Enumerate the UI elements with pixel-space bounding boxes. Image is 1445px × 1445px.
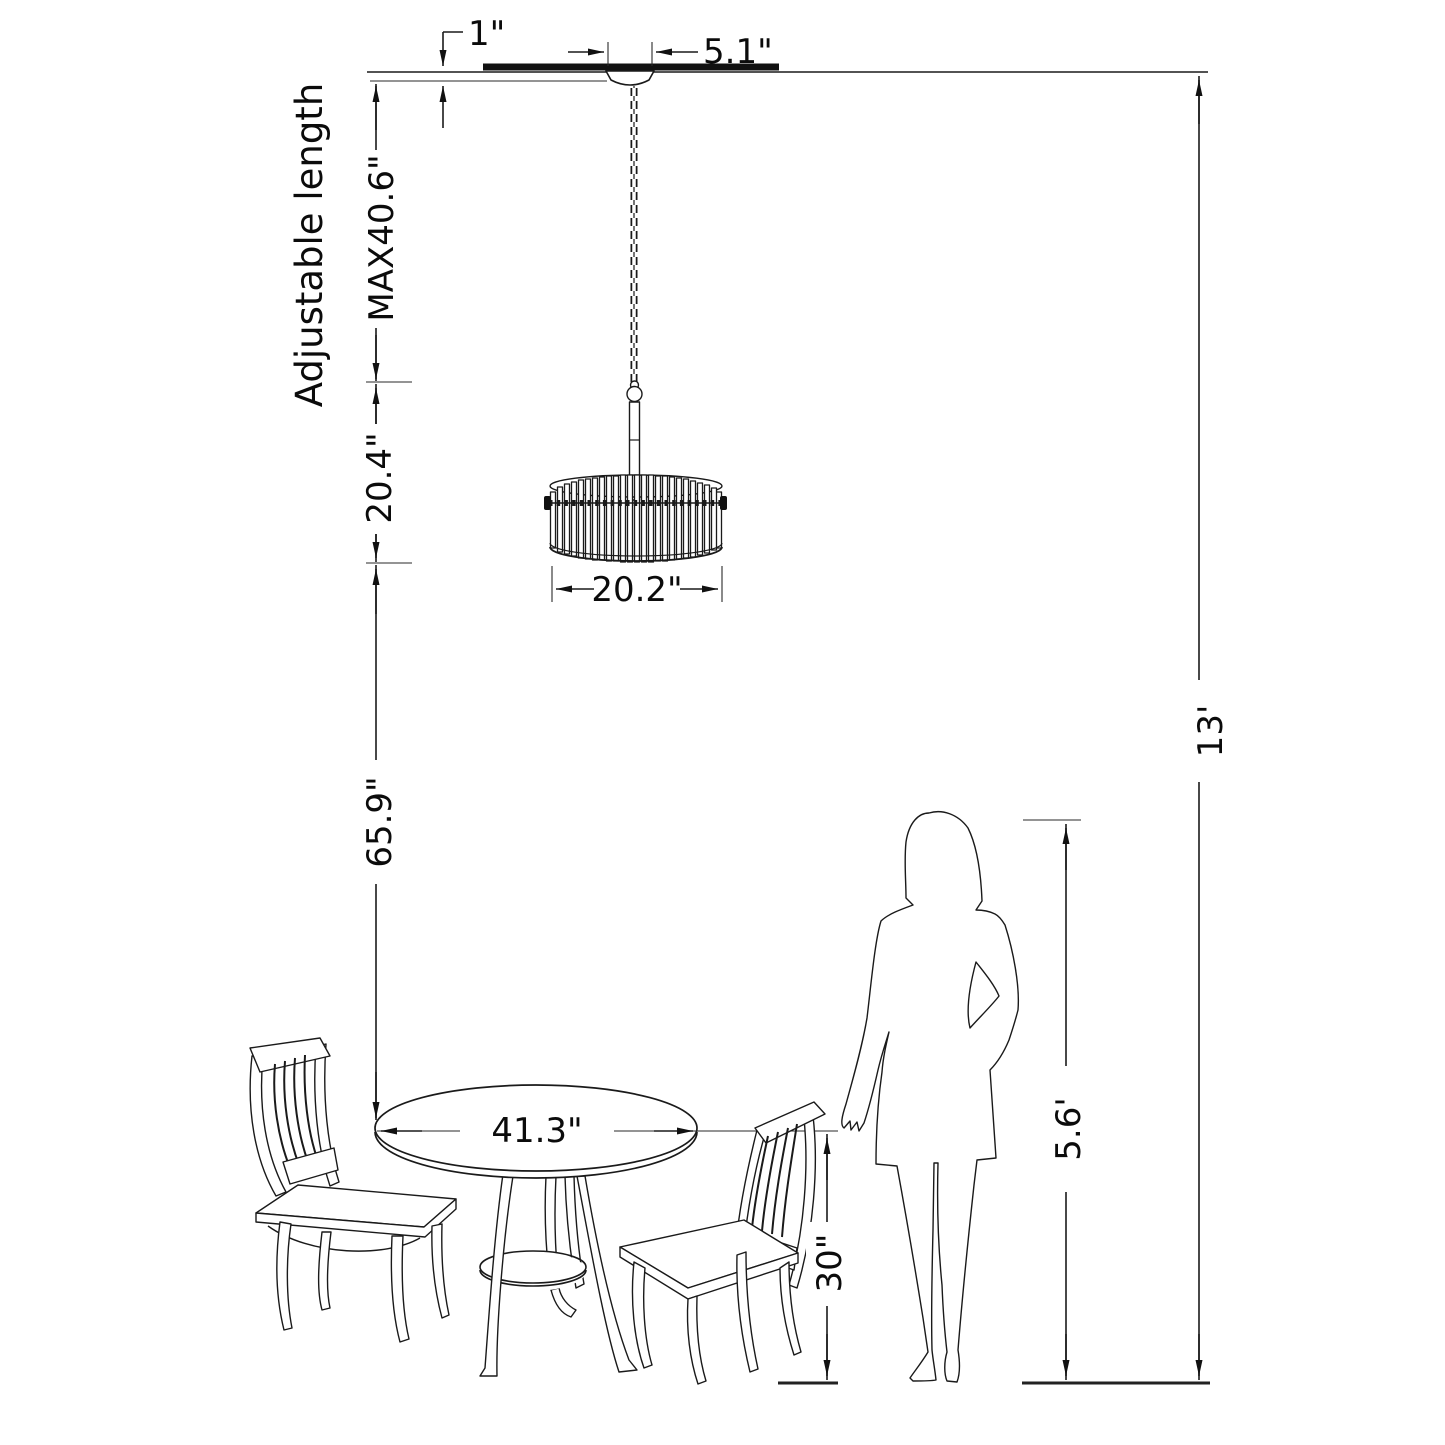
dim-ceiling-height: 13' [1186,76,1231,1380]
chair-left [250,1038,456,1342]
dim-shade-diameter: 20.2" [552,566,722,610]
shade-diameter-label: 20.2" [591,570,682,610]
shade-to-table-label: 65.9" [360,776,400,867]
person-height-label: 5.6' [1049,1097,1089,1160]
canopy-drop-label: 1" [468,14,505,54]
table-diameter-label: 41.3" [491,1111,582,1151]
chandelier-shade [544,475,727,562]
ceiling-height-label: 13' [1191,705,1231,758]
dimension-diagram: 1" 5.1" MAX40.6" Adjustable length 20.4"… [0,0,1445,1445]
table-height-label: 30" [810,1234,850,1293]
max-length-label: MAX40.6" [362,154,402,321]
person-silhouette [842,812,1019,1382]
adjustable-length-label: Adjustable length [288,83,331,408]
dim-chain-section: 20.4" [356,384,400,562]
ceiling-line [367,67,1208,81]
dim-person-height: 5.6' [1023,820,1089,1380]
dim-max-length: MAX40.6" Adjustable length [288,83,402,408]
canopy-width-label: 5.1" [703,32,773,72]
dim-shade-to-table: 65.9" [355,565,400,1120]
dim-canopy-drop: 1" [443,14,505,128]
finial-ball [627,381,642,402]
table-pedestal [480,1174,637,1376]
chain-section-label: 20.4" [360,432,400,523]
canopy [606,71,654,85]
